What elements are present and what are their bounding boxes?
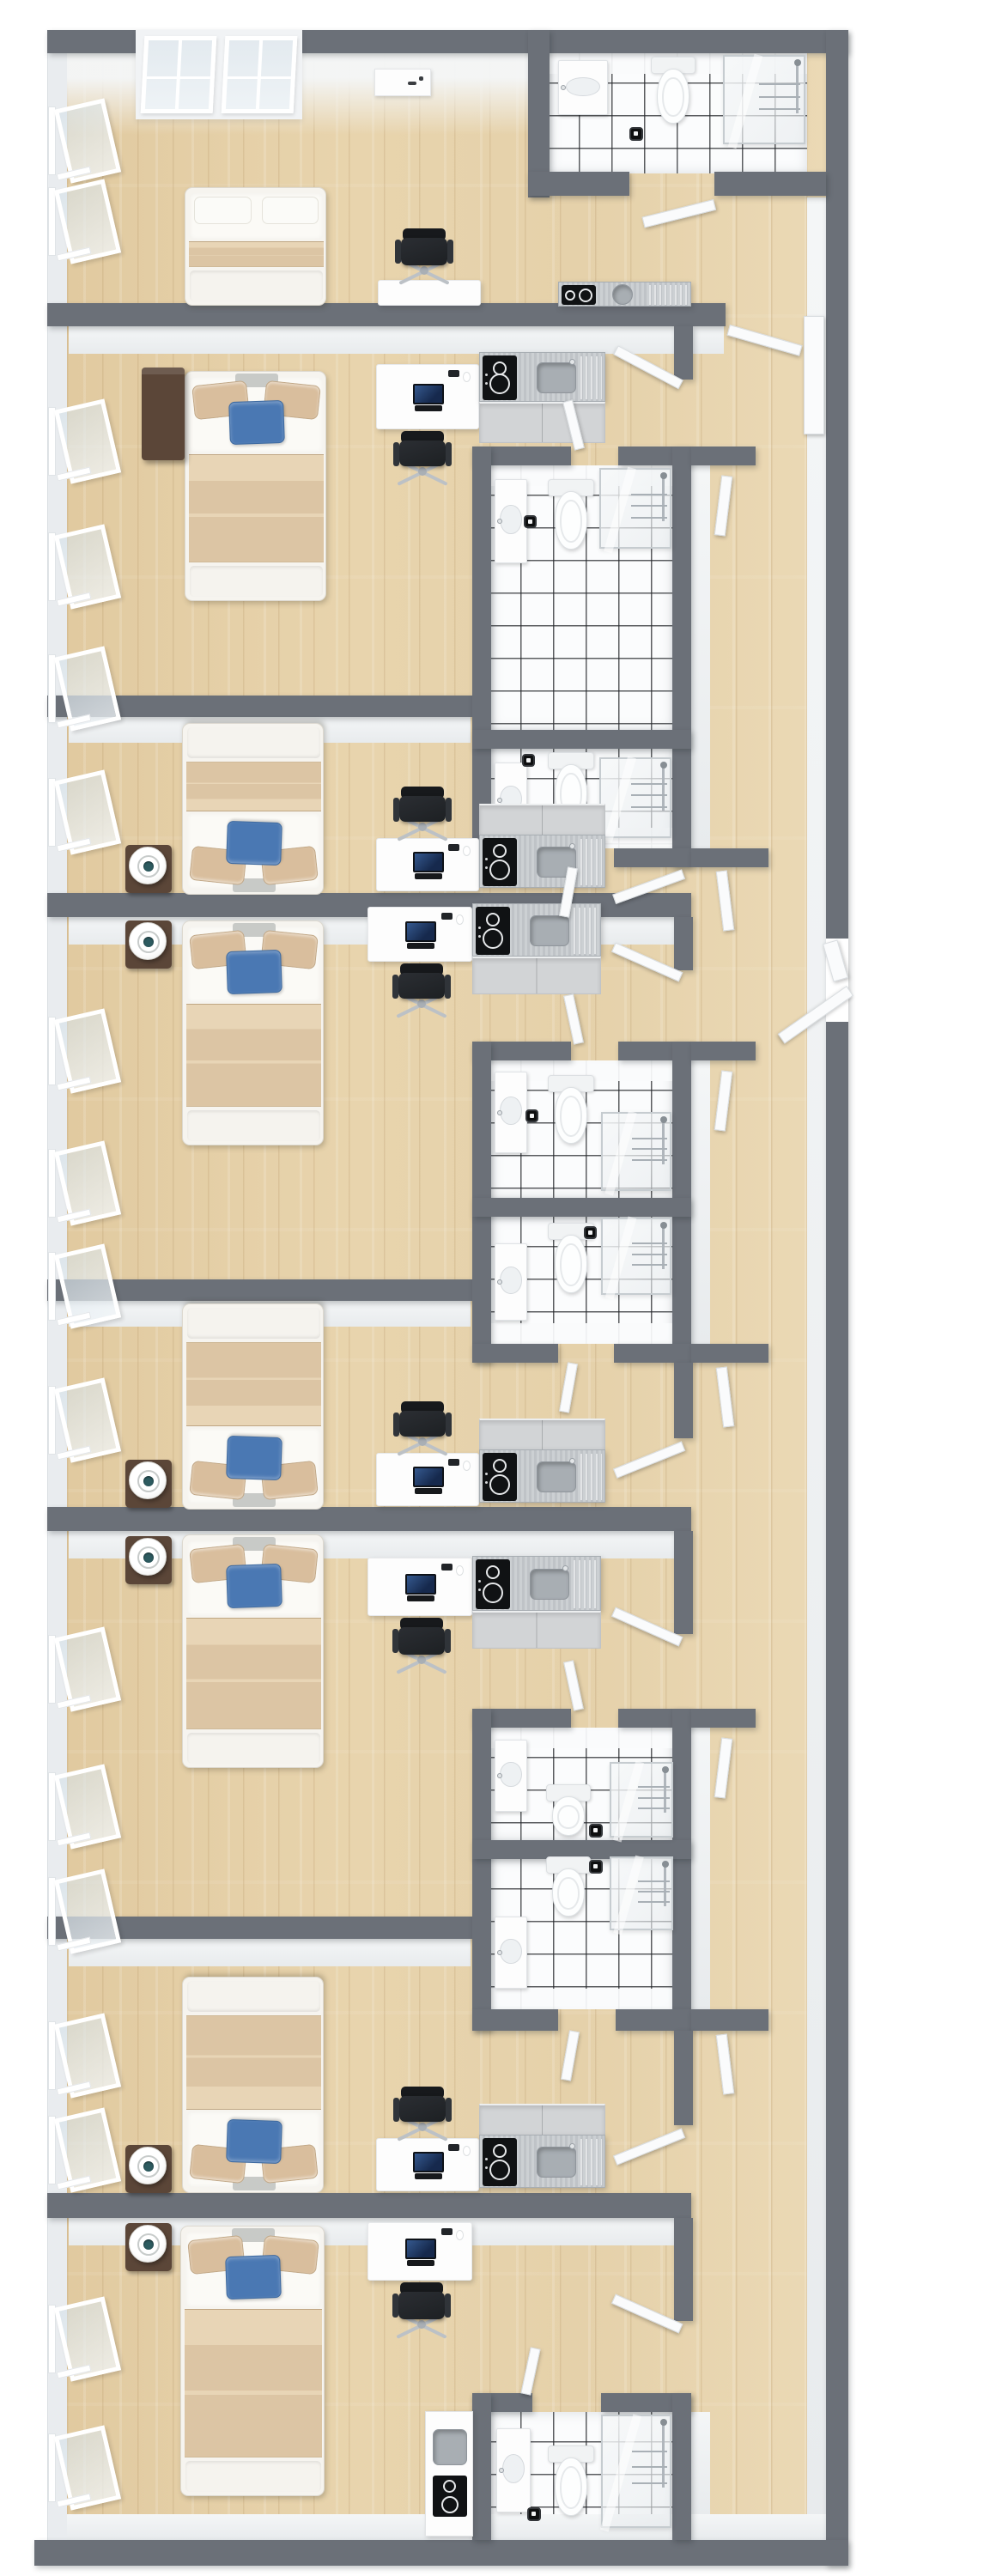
desk-unit-8-phone — [441, 2228, 453, 2235]
kitchenette-unit-3 — [479, 835, 605, 888]
bed-unit-2 — [185, 371, 326, 601]
vestibule-wall-c2 — [674, 2031, 693, 2125]
kitchenette-unit-4-sink — [530, 915, 569, 946]
office-chair-unit-7 — [398, 2087, 446, 2136]
office-chair-unit-2-pole — [418, 467, 427, 476]
shower-b2-shelf — [632, 1242, 667, 1244]
floor-drain-a2-core — [526, 758, 531, 762]
kitchen-cabinets-unit-4 — [472, 957, 601, 994]
bath1-wall-bottom-b — [714, 172, 826, 196]
window-left-3-frame — [48, 407, 56, 476]
floor-drain-b1 — [525, 1109, 538, 1122]
kitchenette-unit-7-cooktop — [483, 2138, 517, 2186]
kitchenette-unit-7-burner-1 — [493, 2144, 507, 2158]
toilet-c1 — [546, 1784, 591, 1838]
window-left-7 — [48, 1012, 134, 1096]
kitchenette-unit-3-faucet — [569, 843, 575, 849]
bed-unit-2-blanket — [189, 454, 324, 562]
bed-unit-5-footboard — [187, 1308, 320, 1339]
wall-face-block-a — [691, 465, 710, 848]
office-chair-unit-5 — [398, 1401, 446, 1451]
kitchenette-unit-1-sink — [612, 284, 633, 305]
kitchenette-unit-6-burner-2 — [483, 1583, 503, 1603]
kitchenette-unit-5-cooktop — [483, 1453, 517, 1501]
shelf-item — [419, 76, 423, 81]
office-chair-unit-2 — [398, 431, 446, 481]
shower-unit1-glass-sheen — [728, 54, 762, 149]
nightstand-unit-6-lamp — [129, 1538, 167, 1576]
desk-unit-7-laptop-screen — [413, 2152, 444, 2172]
kitchenette-unit-6-knob-2 — [478, 1589, 481, 1591]
office-chair-unit-6-armrest-left — [392, 1629, 398, 1653]
window-left-16-frame — [48, 2305, 56, 2373]
vanity-b2-basin — [500, 1267, 521, 1294]
desk-unit-5-phone — [448, 1459, 459, 1466]
desk-unit-5-laptop-screen — [413, 1467, 444, 1487]
vanity-c2-tap — [497, 1950, 502, 1955]
office-chair-unit-4-armrest-right — [445, 975, 451, 999]
vanity-unit8 — [496, 2428, 531, 2512]
desk-unit-5 — [376, 1453, 479, 1506]
kitchenette-unit-2-knob-2 — [485, 382, 488, 385]
nightstand-unit-4-lamp — [129, 922, 167, 960]
bed-unit-3-footboard — [187, 727, 320, 758]
shower-a2-shelf — [631, 806, 667, 808]
office-chair-unit-1 — [400, 228, 448, 280]
window-pane-1 — [141, 36, 217, 113]
window-left-12 — [48, 1767, 134, 1851]
shower-a1-shelf — [631, 494, 667, 495]
vestibule-wall-d — [674, 2218, 693, 2321]
floor-drain-c1-core — [593, 1828, 598, 1832]
kitchenette-unit-1-cooktop — [562, 285, 596, 305]
shower-b2-shelf — [632, 1254, 667, 1255]
kitchenette-unit-8-burner-1 — [443, 2480, 456, 2493]
kitchenette-unit-4-cooktop — [476, 907, 510, 955]
shower-unit8-rail — [662, 2420, 665, 2488]
kitchenette-unit-3-cooktop — [483, 838, 517, 886]
floor-drain-a2 — [522, 754, 535, 767]
window-left-10-frame — [48, 1386, 56, 1455]
shower-c2-head — [662, 1861, 669, 1868]
kitchenette-unit-6-cooktop — [476, 1559, 510, 1609]
vanity-a1 — [495, 479, 527, 563]
kitchenette-unit-6 — [472, 1556, 601, 1611]
toilet-b1-seat — [560, 1096, 582, 1137]
window-left-6-frame — [48, 778, 56, 847]
desk-unit-7 — [376, 2138, 479, 2191]
kitchenette-unit-5-knob-2 — [485, 1481, 488, 1484]
block-b-stub-bottom — [691, 1344, 768, 1363]
kitchenette-unit-2-faucet — [569, 359, 575, 365]
block-b-mid — [472, 1198, 691, 1217]
bed-unit-3 — [182, 723, 324, 895]
desk-unit-7-phone — [448, 2144, 459, 2151]
nightstand-unit-6 — [125, 1536, 172, 1584]
nightstand-unit-7-lamp-core — [143, 2161, 154, 2172]
block-c-left — [472, 1709, 491, 2031]
desk-unit-2-phone — [448, 370, 459, 377]
desk-unit-7-mouse — [463, 2146, 471, 2156]
shower-unit1-shelf — [759, 96, 800, 98]
window-left-16 — [48, 2300, 134, 2384]
block-d-right — [672, 2393, 691, 2540]
nightstand-unit-3-lamp-core — [143, 861, 154, 872]
desk-unit-6-laptop-screen — [405, 1574, 436, 1595]
bed-unit-6-blanket — [186, 1618, 321, 1729]
nightstand-unit-8-lamp-core — [143, 2239, 154, 2250]
vestibule-wall-b1 — [674, 917, 693, 970]
floor-drain-unit8-core — [531, 2512, 536, 2516]
window-left-8 — [48, 1144, 134, 1228]
bed-unit-6-footboard — [187, 1733, 320, 1764]
bed-unit-4-pillow-blue — [226, 950, 282, 994]
shower-b1-rail — [662, 1117, 665, 1164]
kitchen-cabinets-unit-5 — [479, 1419, 605, 1451]
nightstand-unit-5-lamp-core — [143, 1476, 154, 1486]
desk-unit-8-mouse — [456, 2230, 464, 2240]
vanity-c1-basin — [500, 1762, 521, 1788]
shower-unit8-head — [660, 2419, 667, 2426]
office-chair-unit-8-seat — [398, 2292, 445, 2319]
kitchenette-unit-8-sink — [433, 2429, 467, 2465]
block-c-bottom-a — [472, 2009, 558, 2031]
kitchenette-unit-5-faucet — [569, 1458, 575, 1464]
desk-unit-3-phone — [448, 844, 459, 851]
floor-drain-unit1 — [629, 127, 643, 141]
block-a-stub-bottom — [691, 848, 768, 867]
shower-unit8 — [601, 2415, 671, 2528]
desk-unit-5-laptop-base — [415, 1488, 442, 1494]
window-left-4-frame — [48, 532, 56, 601]
shower-b1-shelf — [632, 1148, 667, 1150]
shower-b1-shelf — [632, 1159, 667, 1161]
floor-drain-unit1-core — [634, 131, 638, 136]
toilet-c2 — [546, 1856, 591, 1918]
kitchenette-unit-6-knob-1 — [478, 1580, 481, 1583]
kitchenette-unit-4-knob-1 — [478, 927, 481, 929]
bed-unit-1-blanket — [189, 241, 324, 267]
kitchenette-unit-2-cooktop — [483, 355, 517, 400]
shower-c1-shelf — [638, 1797, 670, 1799]
office-chair-unit-8-armrest-right — [445, 2293, 451, 2318]
vanity-unit1 — [558, 60, 608, 115]
office-chair-unit-6-pole — [417, 1656, 426, 1664]
shower-a2 — [599, 757, 671, 838]
window-pane-2 — [222, 36, 298, 113]
window-left-5 — [48, 649, 134, 733]
vanity-b2-tap — [497, 1279, 502, 1285]
desk-unit-3 — [376, 838, 479, 891]
kitchenette-unit-5 — [479, 1449, 605, 1503]
desk-unit-2-laptop-base — [415, 405, 442, 411]
bed-unit-1 — [185, 187, 326, 306]
desk-unit-7-laptop-base — [415, 2173, 442, 2179]
window-mullion — [175, 40, 182, 109]
bed-unit-4 — [182, 920, 324, 1145]
toilet-unit1 — [651, 57, 695, 125]
bed-unit-6-pillow-blue — [226, 1564, 282, 1608]
desk-unit-4 — [367, 907, 472, 962]
window-mullion — [147, 76, 210, 79]
block-c-stub-top — [691, 1709, 756, 1728]
desk-unit-4-mouse — [456, 914, 464, 925]
kitchen-cabinets-unit-2 — [479, 402, 605, 443]
office-chair-unit-6-armrest-right — [445, 1629, 451, 1653]
vestibule-wall-b2 — [674, 1363, 693, 1438]
bed-unit-2-footboard — [190, 566, 323, 597]
office-chair-unit-7-seat — [399, 2096, 446, 2122]
nightstand-unit-6-lamp-core — [143, 1552, 154, 1563]
kitchenette-unit-7-knob-2 — [485, 2166, 488, 2169]
window-left-6 — [48, 773, 134, 857]
window-left-9-frame — [48, 1252, 56, 1321]
desk-unit-2 — [376, 364, 479, 429]
kitchenette-unit-1-burner-1 — [565, 290, 575, 301]
bed-unit-1-pillow-right — [262, 197, 319, 224]
shower-b1-head — [660, 1116, 667, 1123]
toilet-unit1-seat — [662, 77, 684, 117]
bed-unit-1-pillow-left — [194, 197, 252, 224]
kitchenette-unit-3-knob-2 — [485, 866, 488, 869]
shower-a2-shelf — [631, 783, 667, 785]
block-b-stub-top — [691, 1042, 756, 1060]
bed-unit-8-blanket — [185, 2309, 322, 2458]
kitchenette-unit-3-knob-1 — [485, 858, 488, 860]
office-chair-unit-5-armrest-left — [393, 1413, 399, 1437]
nightstand-unit-8 — [125, 2223, 172, 2271]
office-chair-unit-2-armrest-right — [446, 442, 452, 466]
vanity-c1-tap — [497, 1773, 502, 1778]
vanity-unit1-basin — [566, 77, 599, 96]
toilet-unit8 — [548, 2445, 594, 2518]
kitchenette-unit-5-sink — [537, 1461, 576, 1492]
desk-unit-2-mouse — [463, 372, 471, 382]
kitchenette-unit-7 — [479, 2135, 605, 2188]
desk-unit-1 — [378, 280, 481, 306]
window-left-15 — [48, 2111, 134, 2195]
window-left-17-frame — [48, 2433, 56, 2502]
floor-drain-b2-core — [588, 1230, 592, 1235]
kitchenette-unit-4 — [472, 903, 601, 957]
shower-c1-rail — [664, 1767, 666, 1813]
office-chair-unit-2-armrest-left — [393, 442, 399, 466]
bath1-wall-bottom-a — [528, 172, 629, 196]
office-chair-unit-4-seat — [398, 973, 445, 999]
nightstand-unit-8-lamp — [129, 2225, 167, 2263]
desk-unit-6 — [367, 1558, 472, 1616]
office-chair-unit-6-seat — [398, 1627, 445, 1655]
shower-unit1-shelf — [759, 83, 800, 85]
kitchenette-unit-4-burner-2 — [483, 928, 503, 949]
office-chair-unit-3-pole — [418, 823, 427, 831]
shower-a1-shelf — [631, 505, 667, 507]
office-chair-unit-2-seat — [399, 440, 446, 466]
shower-c1-shelf — [638, 1786, 670, 1788]
vanity-unit8-basin — [502, 2454, 525, 2484]
desk-unit-6-phone — [441, 1564, 453, 1571]
desk-unit-3-laptop-screen — [413, 852, 444, 872]
window-left-13-frame — [48, 1877, 56, 1946]
bed-unit-8-footboard — [185, 2461, 321, 2492]
toilet-c2-seat — [557, 1877, 580, 1910]
shower-c2-rail — [664, 1862, 666, 1906]
shelf-item — [408, 82, 416, 85]
vanity-b1-basin — [500, 1097, 521, 1125]
floor-drain-c2-core — [593, 1864, 598, 1868]
floor-drain-a1-core — [528, 519, 532, 524]
bed-unit-7-pillow-blue — [226, 2119, 282, 2164]
kitchenette-unit-2-drainboard — [580, 356, 602, 399]
bed-unit-7 — [182, 1977, 324, 2193]
shower-unit8-shelf — [632, 2466, 667, 2468]
shower-a2-glass-sheen — [604, 756, 636, 843]
window-mullion — [228, 76, 291, 79]
window-left-2-frame — [48, 187, 56, 256]
office-chair-unit-6 — [398, 1618, 446, 1669]
shower-b2 — [601, 1218, 671, 1295]
vanity-c2-basin — [500, 1939, 521, 1965]
shower-b1-shelf — [632, 1138, 667, 1139]
wall-unit1-2 — [47, 303, 726, 326]
office-chair-unit-5-seat — [399, 1411, 446, 1437]
office-chair-unit-7-armrest-right — [446, 2098, 452, 2122]
kitchenette-unit-3-burner-1 — [493, 844, 507, 858]
window-left-9 — [48, 1247, 134, 1331]
wardrobe-unit-2-top — [142, 368, 185, 374]
bed-unit-5-blanket — [186, 1342, 321, 1426]
bed-unit-8-pillow-blue — [225, 2255, 282, 2300]
bed-unit-8 — [180, 2226, 325, 2496]
window-left-13 — [48, 1872, 134, 1956]
kitchenette-unit-2 — [479, 352, 605, 402]
window-left-1 — [48, 101, 134, 185]
nightstand-unit-4-lamp-core — [143, 937, 154, 947]
bathroom-c2-wall-face — [491, 1989, 672, 2009]
office-chair-unit-7-armrest-left — [393, 2098, 399, 2122]
shower-b1 — [601, 1112, 671, 1191]
kitchenette-unit-4-drainboard — [574, 908, 598, 954]
shower-c1-shelf — [638, 1807, 670, 1809]
nightstand-unit-4 — [125, 920, 172, 969]
bed-unit-4-footboard — [187, 1110, 320, 1141]
desk-unit-5-mouse — [463, 1461, 471, 1471]
toilet-c1-seat — [557, 1805, 580, 1829]
window-left-10 — [48, 1381, 134, 1465]
desk-unit-8-laptop-base — [407, 2260, 434, 2266]
wall-unit5-6 — [47, 1507, 691, 1531]
toilet-b1 — [548, 1075, 594, 1145]
kitchenette-unit-7-knob-1 — [485, 2158, 488, 2160]
kitchenette-unit-2-sink — [537, 362, 576, 393]
shower-unit1-shelf — [759, 108, 800, 110]
kitchen-cabinets-unit-3 — [479, 804, 605, 836]
window-left-1-frame — [48, 106, 56, 175]
office-chair-unit-4 — [398, 963, 446, 1013]
bed-unit-5-pillow-blue — [226, 1436, 282, 1480]
window-left-14 — [48, 2016, 134, 2100]
floor-drain-b1-core — [530, 1114, 534, 1118]
window-left-14-frame — [48, 2021, 56, 2090]
office-chair-unit-5-pole — [418, 1437, 427, 1446]
toilet-unit8-seat — [560, 2466, 582, 2509]
window-left-11-frame — [48, 1635, 56, 1704]
window-left-8-frame — [48, 1149, 56, 1218]
nightstand-unit-7-lamp — [129, 2147, 167, 2184]
toilet-a1-seat — [560, 500, 582, 543]
vanity-a1-tap — [497, 519, 502, 524]
window-left-7-frame — [48, 1017, 56, 1085]
office-chair-unit-4-pole — [417, 999, 426, 1008]
kitchenette-unit-6-faucet — [562, 1565, 568, 1571]
office-chair-unit-1-pole — [420, 266, 428, 275]
bed-unit-6 — [182, 1534, 324, 1768]
nightstand-unit-3-lamp — [129, 847, 167, 884]
nightstand-unit-5 — [125, 1460, 172, 1508]
kitchenette-unit-6-drainboard — [574, 1560, 598, 1608]
shower-b2-rail — [662, 1223, 665, 1269]
bathroom-b2-wall-face — [491, 1323, 672, 1344]
shower-c2-shelf — [638, 1891, 670, 1893]
shower-a1-rail — [662, 473, 665, 521]
corridor-door-open — [804, 316, 824, 434]
kitchenette-unit-1-drainboard — [649, 285, 687, 305]
shower-b2-head — [660, 1222, 667, 1229]
shower-c2 — [610, 1856, 673, 1930]
kitchen-cabinets-unit-7 — [479, 2104, 605, 2136]
desk-unit-6-laptop-base — [407, 1595, 434, 1601]
shower-unit1-rail — [796, 60, 799, 113]
window-left-11 — [48, 1630, 134, 1714]
kitchen-cabinets-unit-6 — [472, 1611, 601, 1649]
office-chair-unit-4-armrest-left — [392, 975, 398, 999]
wall-right — [826, 30, 848, 2566]
floor-drain-c2 — [589, 1860, 603, 1874]
toilet-b2-seat — [560, 1243, 582, 1286]
wall-face-block-c — [691, 1728, 710, 2009]
vestibule-wall-c1 — [674, 1531, 693, 1634]
kitchenette-unit-8-burner-2 — [441, 2496, 459, 2513]
vanity-c2 — [495, 1917, 527, 1989]
floor-drain-b2 — [584, 1226, 597, 1239]
nightstand-unit-7 — [125, 2145, 172, 2193]
window-left-17 — [48, 2428, 134, 2512]
desk-unit-4-laptop-screen — [405, 921, 436, 942]
desk-unit-2-laptop-screen — [413, 384, 444, 404]
vanity-b2 — [495, 1243, 527, 1321]
bed-unit-5 — [182, 1303, 324, 1510]
shower-a1-glass-sheen — [604, 467, 636, 554]
shower-c2-shelf — [638, 1901, 670, 1903]
wall-face-block-b — [691, 1060, 710, 1344]
desk-unit-8-laptop-screen — [405, 2239, 436, 2259]
nightstand-unit-5-lamp — [129, 1461, 167, 1499]
floor-drain-unit8 — [527, 2507, 541, 2521]
bed-unit-4-blanket — [186, 1004, 321, 1107]
kitchenette-unit-5-knob-1 — [485, 1473, 488, 1475]
office-chair-unit-8 — [398, 2282, 446, 2334]
shower-b1-glass-sheen — [605, 1111, 637, 1196]
kitchenette-unit-7-faucet — [569, 2143, 575, 2149]
kitchenette-unit-7-burner-2 — [489, 2160, 510, 2180]
vanity-a1-basin — [500, 505, 521, 535]
kitchenette-unit-7-drainboard — [580, 2139, 602, 2185]
bed-unit-1-footboard — [190, 270, 323, 301]
kitchenette-unit-5-burner-1 — [493, 1459, 507, 1473]
shower-c1-glass-sheen — [613, 1760, 644, 1842]
vanity-b1-tap — [497, 1110, 502, 1115]
kitchenette-unit-3-drainboard — [580, 839, 602, 885]
